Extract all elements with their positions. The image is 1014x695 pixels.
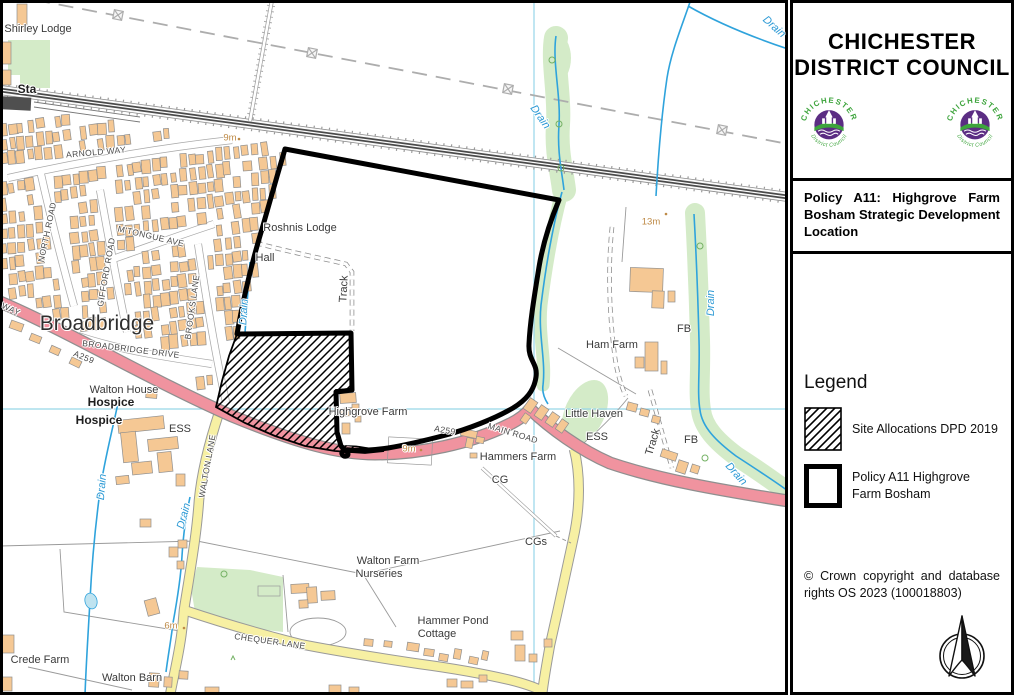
- council-logos: CHICHESTER District Council: [793, 90, 1011, 154]
- hatch-swatch-icon: [804, 407, 842, 451]
- outline-swatch-icon: [804, 464, 842, 508]
- map-canvas: [0, 0, 788, 695]
- north-arrow-icon: [931, 612, 993, 684]
- info-panel: CHICHESTER DISTRICT COUNCIL: [790, 0, 1014, 695]
- council-header: CHICHESTER DISTRICT COUNCIL: [793, 3, 1011, 181]
- legend-item-policy-a11: Policy A11 Highgrove Farm Bosham: [804, 464, 1000, 508]
- legend-label: Site Allocations DPD 2019: [852, 421, 998, 437]
- copyright-note: © Crown copyright and database rights OS…: [804, 568, 1000, 602]
- page: Shirley LodgeStaARNOLD WAY9mNORTH ROADM'…: [0, 0, 1014, 695]
- legend-item-site-allocations: Site Allocations DPD 2019: [804, 407, 1000, 451]
- legend-heading: Legend: [804, 372, 1000, 394]
- council-logo-icon: CHICHESTER District Council: [797, 90, 861, 154]
- policy-title: Policy A11: Highgrove Farm Bosham Strate…: [793, 181, 1011, 254]
- legend-panel: Legend Site Allocations DPD 2019 Policy …: [793, 254, 1011, 692]
- council-title: CHICHESTER DISTRICT COUNCIL: [793, 29, 1011, 80]
- map: Shirley LodgeStaARNOLD WAY9mNORTH ROADM'…: [0, 0, 788, 695]
- legend-label: Policy A11 Highgrove Farm Bosham: [852, 469, 1000, 502]
- council-logo-icon: CHICHESTER District Council: [943, 90, 1007, 154]
